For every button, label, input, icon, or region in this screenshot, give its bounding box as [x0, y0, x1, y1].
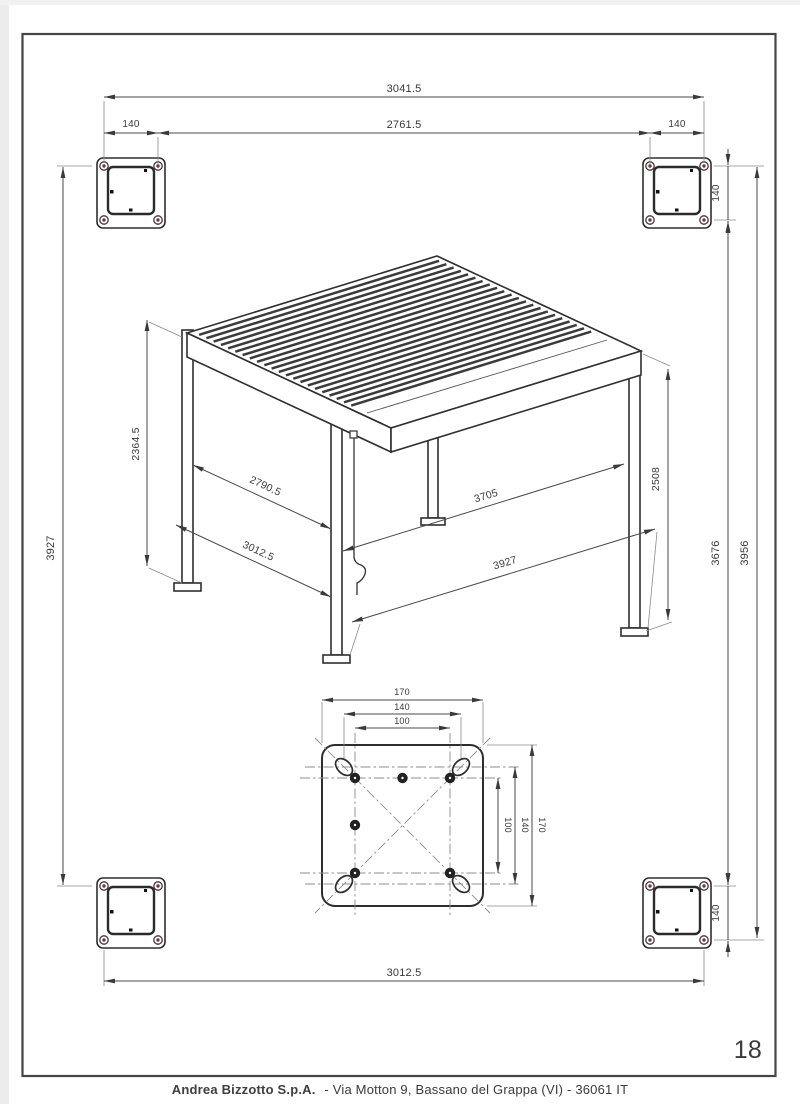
dim-height-inner: 3676 — [710, 540, 722, 565]
dim-holes-width: 140 — [394, 702, 410, 712]
dim-inner-width: 2761.5 — [387, 119, 422, 131]
dim-plate-height: 170 — [537, 817, 547, 833]
dim-offset-right: 140 — [668, 119, 686, 130]
footer-text: Andrea Bizzotto S.p.A. - Via Motton 9, B… — [172, 1082, 628, 1097]
dim-holes-height: 140 — [520, 817, 530, 833]
dim-post-bottom: 140 — [711, 904, 722, 922]
dim-side-height: 2508 — [650, 467, 662, 491]
manual-page: 3041.5 140 2761.5 140 140 3676 3956 1 — [0, 0, 800, 1104]
base-plate-bottom-right — [643, 878, 711, 948]
footer-address: - Via Motton 9, Bassano del Grappa (VI) … — [324, 1082, 628, 1097]
scan-edge — [0, 0, 9, 1104]
dim-inner-holes-width: 100 — [394, 716, 410, 726]
dim-overall-width: 3041.5 — [387, 83, 422, 95]
dim-post-top: 140 — [711, 184, 722, 202]
base-plate-bottom-left — [97, 878, 165, 948]
footer-company: Andrea Bizzotto S.p.A. — [172, 1082, 316, 1097]
base-plate-top-left — [97, 158, 165, 228]
dim-left-height: 3927 — [45, 535, 57, 560]
dim-post-height: 2364.5 — [130, 427, 142, 460]
dim-height-outer: 3956 — [739, 540, 751, 565]
dim-plate-width: 170 — [394, 687, 410, 697]
technical-drawing: 3041.5 140 2761.5 140 140 3676 3956 1 — [0, 0, 800, 1104]
motor-box — [350, 431, 357, 438]
dim-offset-left: 140 — [122, 119, 140, 130]
page-number: 18 — [734, 1036, 762, 1064]
dim-bottom-width: 3012.5 — [387, 967, 422, 979]
dim-inner-holes-height: 100 — [503, 817, 513, 833]
scan-edge — [0, 0, 800, 5]
base-plate-top-right — [643, 158, 711, 228]
